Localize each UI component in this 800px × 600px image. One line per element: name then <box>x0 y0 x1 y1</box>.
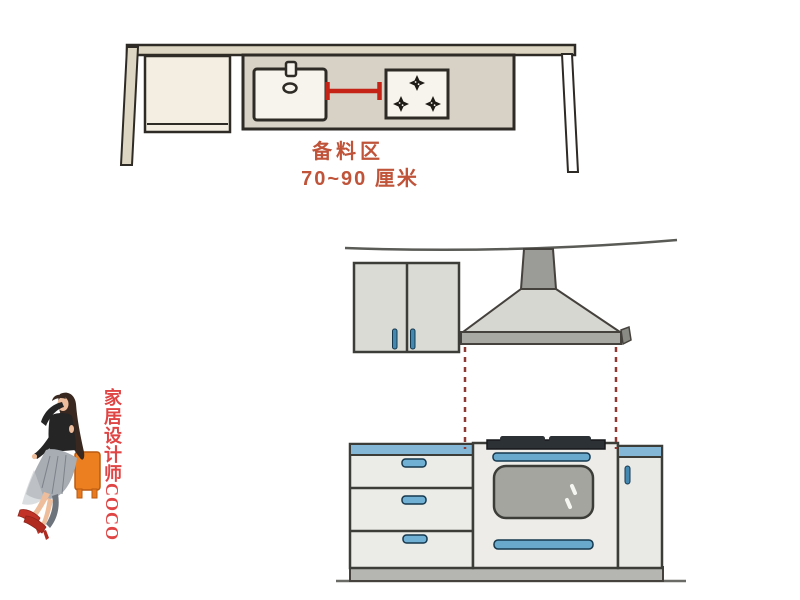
right-base-cabinet <box>618 446 662 568</box>
watermark-text: 家居设计师COCO <box>99 388 125 546</box>
elevation-view <box>336 240 686 581</box>
hand <box>32 454 37 459</box>
shoe-icon <box>24 516 46 533</box>
shoe-heel <box>43 530 49 540</box>
hood-lip <box>461 332 621 344</box>
designer-illustration <box>18 393 100 540</box>
wall-left <box>121 47 138 165</box>
wall-right <box>562 54 578 172</box>
range-oven <box>473 436 618 568</box>
oven-control-bar <box>493 453 590 461</box>
oven-window <box>494 466 593 518</box>
drain-icon <box>284 84 297 93</box>
cabinet-handle-icon <box>411 329 416 349</box>
drawer-handle-icon <box>402 459 426 467</box>
kitchen-design-infographic: 备料区 70~90 厘米 家居设计师COCO <box>0 0 800 600</box>
burner-grate-icon <box>500 436 545 442</box>
burner-grate-icon <box>549 436 591 442</box>
hood-chimney <box>521 249 556 289</box>
faucet-icon <box>286 62 296 76</box>
plan-left-cabinet <box>145 56 230 132</box>
distance-label: 70~90 厘米 <box>270 169 450 189</box>
ceiling-line <box>345 240 677 250</box>
shoulder-cutout <box>69 425 74 433</box>
alignment-dashes <box>465 347 616 449</box>
hood-lip-end <box>621 327 631 344</box>
base-drawer-unit <box>350 444 473 568</box>
designer-figure <box>18 393 84 540</box>
prep-zone-label: 备料区 <box>278 142 418 162</box>
stool-icon <box>75 452 100 498</box>
drawer-handle-icon <box>402 496 426 504</box>
countertop-right <box>618 446 662 457</box>
countertop-left <box>350 444 473 455</box>
cabinet-handle-icon <box>393 329 398 349</box>
range-hood <box>463 289 620 332</box>
oven-drawer-handle <box>494 540 593 549</box>
wall-cabinet <box>354 263 459 352</box>
drawer-handle-icon <box>403 535 427 543</box>
cabinet-handle-icon <box>625 466 630 484</box>
